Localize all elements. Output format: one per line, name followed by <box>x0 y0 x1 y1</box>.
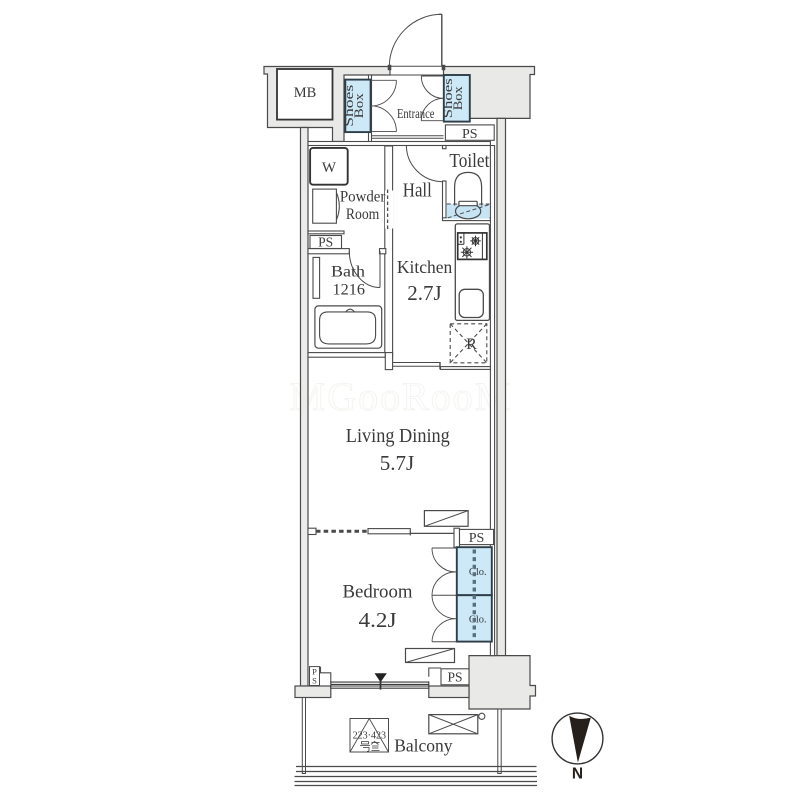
svg-text:Bath: Bath <box>331 263 365 280</box>
svg-text:Room: Room <box>346 206 380 223</box>
svg-text:Clo.: Clo. <box>469 567 487 578</box>
svg-text:1216: 1216 <box>333 282 366 299</box>
svg-text:PS: PS <box>318 234 333 249</box>
svg-text:223·423: 223·423 <box>353 731 386 742</box>
svg-text:Hall: Hall <box>403 181 432 202</box>
svg-text:Kitchen: Kitchen <box>397 257 453 277</box>
svg-text:MGooRooM: MGooRooM <box>290 374 513 419</box>
svg-text:Living Dining: Living Dining <box>346 426 450 447</box>
svg-text:Clo.: Clo. <box>469 615 487 626</box>
svg-text:S: S <box>312 676 317 686</box>
svg-text:R: R <box>466 336 477 353</box>
svg-text:W: W <box>322 160 337 176</box>
svg-text:Bedroom: Bedroom <box>343 583 414 603</box>
svg-text:Balcony: Balcony <box>394 736 453 756</box>
svg-text:N: N <box>572 766 583 783</box>
svg-text:5.7J: 5.7J <box>380 451 414 475</box>
svg-text:PS: PS <box>447 670 462 685</box>
svg-text:Entrance: Entrance <box>397 107 435 122</box>
svg-text:2.7J: 2.7J <box>407 281 441 305</box>
svg-text:PS: PS <box>469 531 485 546</box>
svg-text:PS: PS <box>462 127 478 142</box>
svg-text:MB: MB <box>294 85 317 101</box>
svg-text:Toilet: Toilet <box>449 151 490 172</box>
svg-text:Powder: Powder <box>340 188 386 205</box>
svg-text:4.2J: 4.2J <box>359 608 397 632</box>
